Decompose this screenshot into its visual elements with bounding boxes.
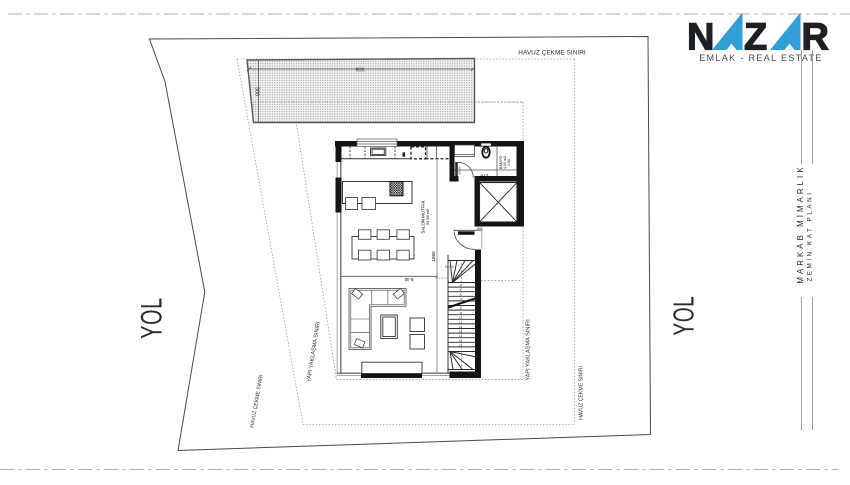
svg-text:50x25: 50x25 — [445, 265, 454, 269]
svg-text:90/210: 90/210 — [458, 166, 462, 175]
svg-text:12: 12 — [459, 325, 463, 329]
svg-text:13: 13 — [459, 330, 463, 334]
svg-text:55.56 m2: 55.56 m2 — [425, 209, 430, 225]
svg-text:10: 10 — [459, 316, 463, 320]
svg-text:MARKAB MİMARLIK: MARKAB MİMARLIK — [796, 164, 805, 283]
svg-text:906: 906 — [355, 66, 364, 72]
svg-text:14: 14 — [459, 334, 463, 338]
svg-text:ZEMİN KAT PLANI: ZEMİN KAT PLANI — [807, 190, 814, 281]
svg-text:15: 15 — [459, 339, 463, 343]
svg-text:YAPI YAKLAŞMA SINIRI: YAPI YAKLAŞMA SINIRI — [526, 319, 532, 381]
svg-text:16: 16 — [459, 343, 463, 347]
svg-text:YOL: YOL — [669, 296, 701, 336]
svg-text:HAVUZ ÇEKME SINIRI: HAVUZ ÇEKME SINIRI — [579, 366, 585, 420]
svg-text:1060: 1060 — [431, 251, 436, 262]
svg-text:5.40: 5.40 — [404, 277, 413, 282]
svg-text:11: 11 — [459, 320, 462, 324]
svg-text:HAVUZ ÇEKME SINIRI: HAVUZ ÇEKME SINIRI — [518, 50, 586, 57]
svg-text:YOL: YOL — [135, 297, 168, 339]
svg-text:EMLAK - REAL ESTATE: EMLAK - REAL ESTATE — [699, 53, 823, 63]
svg-text:1:50: 1:50 — [507, 159, 511, 166]
svg-text:270: 270 — [480, 172, 488, 178]
svg-text:300: 300 — [254, 87, 260, 96]
